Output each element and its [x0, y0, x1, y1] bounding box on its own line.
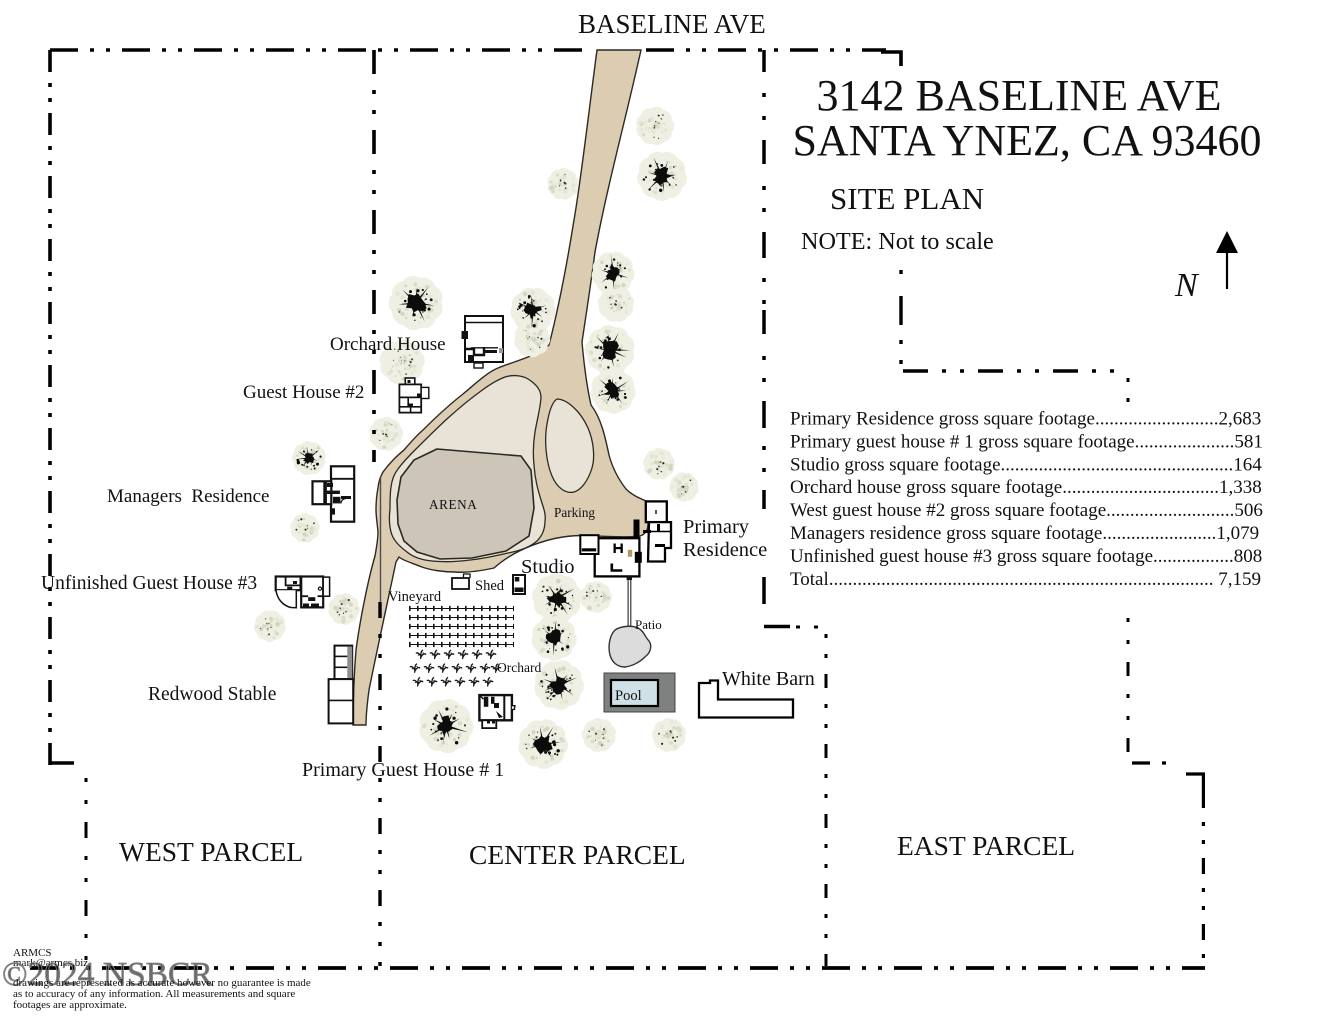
svg-text:White Barn: White Barn — [722, 668, 815, 690]
svg-text:Orchard house gross square foo: Orchard house gross square footage......… — [790, 477, 1262, 498]
svg-text:BASELINE AVE: BASELINE AVE — [578, 9, 766, 39]
svg-text:3142 BASELINE AVE: 3142 BASELINE AVE — [817, 71, 1222, 120]
svg-text:Vineyard: Vineyard — [388, 589, 442, 605]
svg-text:Pool: Pool — [615, 688, 642, 704]
svg-text:Redwood Stable: Redwood Stable — [148, 684, 276, 705]
svg-text:Studio gross square footage...: Studio gross square footage.............… — [790, 454, 1262, 475]
svg-text:SITE PLAN: SITE PLAN — [830, 181, 984, 216]
svg-text:Parking: Parking — [554, 505, 595, 520]
svg-text:Primary Guest House # 1: Primary Guest House # 1 — [302, 759, 504, 781]
svg-text:ARENA: ARENA — [429, 497, 477, 512]
svg-text:Primary guest house # 1 gross: Primary guest house # 1 gross square foo… — [790, 431, 1263, 452]
svg-text:Unfinished Guest House #3: Unfinished Guest House #3 — [41, 573, 257, 594]
svg-text:Residence: Residence — [683, 539, 767, 561]
svg-text:Primary Residence gross square: Primary Residence gross square footage..… — [790, 409, 1261, 430]
svg-text:footages are approximate.: footages are approximate. — [13, 999, 127, 1011]
svg-text:CENTER PARCEL: CENTER PARCEL — [469, 839, 686, 870]
svg-text:West guest house #2 gross squa: West guest house #2 gross square footage… — [790, 500, 1263, 521]
svg-text:Primary: Primary — [683, 516, 750, 538]
svg-text:NOTE: Not to scale: NOTE: Not to scale — [801, 228, 994, 255]
svg-text:Studio: Studio — [521, 556, 575, 578]
svg-text:Orchard House: Orchard House — [330, 334, 446, 355]
svg-text:WEST PARCEL: WEST PARCEL — [119, 836, 303, 867]
svg-text:Shed: Shed — [475, 578, 505, 594]
svg-text:Orchard: Orchard — [497, 660, 541, 675]
svg-text:Managers Residence: Managers Residence — [107, 486, 270, 507]
svg-text:Patio: Patio — [635, 617, 662, 632]
svg-text:SANTA YNEZ, CA 93460: SANTA YNEZ, CA 93460 — [792, 116, 1261, 165]
svg-text:EAST PARCEL: EAST PARCEL — [897, 830, 1075, 861]
svg-text:Guest House #2: Guest House #2 — [243, 382, 364, 403]
svg-text:Unfinished guest house #3 gros: Unfinished guest house #3 gross square f… — [790, 546, 1262, 567]
svg-text:N: N — [1174, 267, 1200, 304]
svg-text:Managers residence gross squar: Managers residence gross square footage.… — [790, 523, 1259, 544]
svg-text:Total.........................: Total...................................… — [790, 569, 1261, 590]
